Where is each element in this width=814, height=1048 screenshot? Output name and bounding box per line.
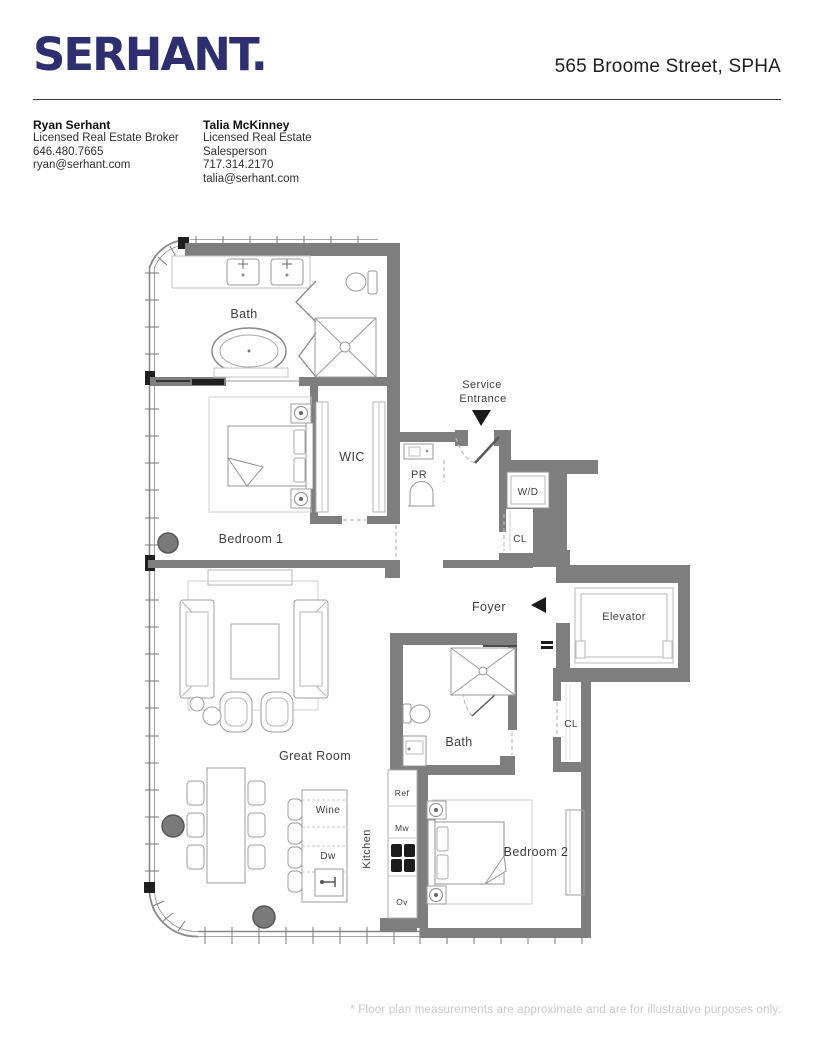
bedroom1-furniture (209, 397, 313, 512)
utility-closets (506, 472, 678, 762)
room-label-cl1: CL (513, 534, 527, 545)
bath1-fixtures (172, 256, 377, 377)
column (162, 815, 184, 837)
side-table (203, 707, 221, 725)
stool (288, 847, 302, 868)
appliance-label-mw: Mw (395, 823, 409, 833)
dining-furniture (187, 768, 265, 883)
column (158, 533, 178, 553)
room-label-bedroom2: Bedroom 2 (504, 845, 569, 859)
console (208, 570, 292, 585)
toilet-icon (368, 271, 377, 294)
bath2-door-leaf (472, 694, 496, 716)
service-door-leaf (475, 437, 499, 463)
room-label-elevator: Elevator (602, 611, 646, 623)
appliance-label-wine: Wine (316, 805, 340, 816)
side-table (190, 697, 204, 711)
great-room-furniture (180, 570, 328, 732)
sofa-icon (294, 600, 328, 698)
service-entrance-label-2: Entrance (459, 393, 506, 405)
dining-chair (248, 813, 265, 837)
appliance-label-ov: Ov (396, 897, 408, 907)
bath-bench (214, 368, 288, 377)
dining-chair (187, 845, 204, 869)
elevator-cab-area (570, 583, 678, 668)
room-label-foyer: Foyer (472, 600, 506, 614)
dining-chair (248, 781, 265, 805)
room-label-bath1: Bath (230, 307, 257, 321)
room-label-kitchen: Kitchen (361, 829, 373, 869)
room-label-bath2: Bath (445, 735, 472, 749)
main-entrance-arrow (531, 597, 546, 613)
dining-table (207, 768, 245, 883)
dining-chair (187, 813, 204, 837)
room-label-bedroom1: Bedroom 1 (219, 532, 284, 546)
stool (288, 871, 302, 892)
service-entrance-label-1: Service (462, 379, 501, 391)
room-label-wic: WIC (339, 450, 365, 464)
appliance-label-ref: Ref (395, 788, 410, 798)
room-label-great-room: Great Room (279, 749, 351, 763)
sofa-icon (180, 600, 214, 698)
toilet-icon (410, 482, 433, 506)
floor-plan-sheet: SERHANT. 565 Broome Street, SPHA Ryan Se… (0, 0, 814, 1048)
coffee-table (231, 624, 279, 679)
floor-plan-drawing: Bath WIC PR Service Entrance W/D CL Bedr… (0, 0, 814, 1048)
entry-threshold-marks (541, 641, 553, 649)
dining-chair (187, 781, 204, 805)
column (253, 906, 275, 928)
pocket-door-panel (192, 379, 224, 385)
room-label-pr: PR (411, 469, 427, 481)
stool (288, 823, 302, 844)
room-label-cl2: CL (564, 719, 578, 730)
room-label-wd: W/D (518, 487, 539, 498)
disclaimer: * Floor plan measurements are approximat… (350, 1004, 781, 1016)
shower-entry-walls (296, 281, 316, 377)
stool (288, 799, 302, 820)
dining-chair (248, 845, 265, 869)
service-entrance-arrow (472, 410, 491, 426)
appliance-label-dw: Dw (320, 851, 336, 862)
